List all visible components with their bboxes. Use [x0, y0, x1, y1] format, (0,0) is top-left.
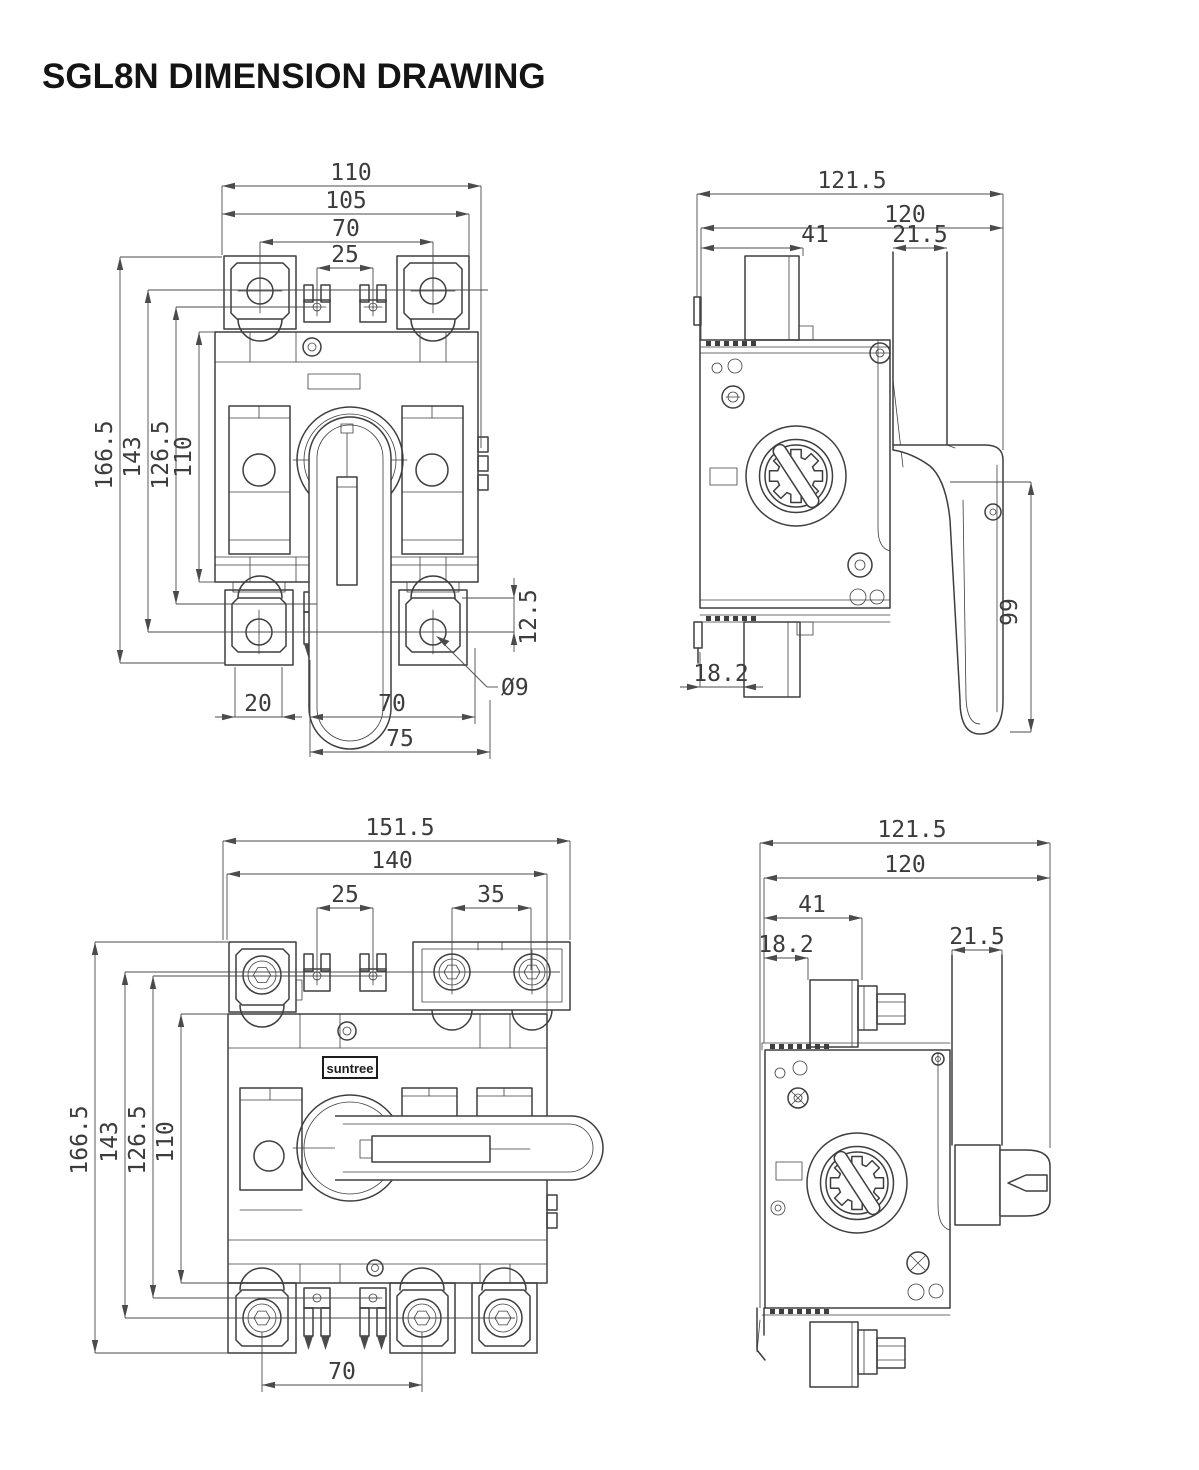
handle-shaft-channel-3p [952, 955, 1002, 1145]
brand-label: suntree [323, 1057, 377, 1078]
side-view-3pole: 121.5 120 41 18.2 21.5 [757, 817, 1050, 1387]
side-tab [478, 475, 488, 490]
dim-label: 143 [97, 1121, 123, 1163]
handle-knob-side [955, 1145, 1050, 1225]
dim-label: 70 [332, 216, 360, 242]
terminal-bottom-right [399, 576, 467, 665]
dim-label: 20 [244, 691, 272, 717]
page-title: SGL8N DIMENSION DRAWING [42, 57, 546, 96]
side-view-2pole: 121.5 120 41 21.5 99 18.2 [680, 168, 1034, 734]
dim-label: 143 [120, 436, 146, 478]
dim-label: 18.2 [693, 661, 748, 687]
dim-terminal-depth [701, 245, 803, 256]
terminal-stud-bottom [810, 1322, 905, 1387]
front-view-3pole: suntree [67, 815, 603, 1392]
dim-label: 105 [325, 188, 367, 214]
terminal-bottom-right-3p [472, 1268, 537, 1353]
dim-label: 121.5 [877, 817, 946, 843]
dim-label: 75 [386, 726, 414, 752]
brand-text: suntree [327, 1061, 374, 1076]
dimension-drawing: SGL8N DIMENSION DRAWING [0, 0, 1199, 1470]
dim-label: 151.5 [365, 815, 434, 841]
dim-label: 25 [331, 882, 359, 908]
rotary-drive-gear-3p [807, 1133, 907, 1233]
dim-body-height [196, 332, 215, 582]
dim-label: 140 [371, 848, 413, 874]
dim-label: 35 [477, 882, 505, 908]
dim-label: 110 [171, 436, 197, 478]
side-handle-2pole [893, 445, 1003, 734]
dim-label: 121.5 [817, 168, 886, 194]
front-view-2pole: 110 105 70 25 166.5 143 126.5 110 12.5 Ø… [92, 160, 542, 759]
dim-clip-pitch-3p [317, 905, 373, 973]
dim-label: 70 [328, 1359, 356, 1385]
wire-clip-bottom-left-3p [304, 1288, 330, 1350]
dim-label: 70 [378, 691, 406, 717]
dim-overall-depth [697, 191, 1003, 450]
rotary-drive-gear [746, 426, 846, 526]
nameplate [308, 374, 360, 389]
terminal-side-top [745, 256, 813, 340]
din-rail-clip-3p [757, 1308, 765, 1360]
switch-handle-horizontal [335, 1116, 603, 1180]
dim-label: 12.5 [516, 589, 542, 644]
dim-label: 18.2 [758, 932, 813, 958]
dim-body-depth [701, 225, 1003, 340]
side-tab [478, 456, 488, 471]
terminal-bottom-mid-3p [390, 1268, 455, 1353]
terminal-stud-top [810, 980, 905, 1047]
dim-label: 166.5 [92, 420, 118, 489]
dimension-drawing-page: SGL8N DIMENSION DRAWING [0, 0, 1199, 1470]
side-tab [547, 1195, 557, 1210]
dim-label: 110 [153, 1121, 179, 1163]
dim-label: 99 [997, 598, 1023, 626]
terminal-bottom-left [225, 576, 293, 665]
dim-label: 120 [884, 852, 926, 878]
handle-shaft-channel [893, 252, 947, 467]
dim-label: Ø9 [501, 675, 529, 701]
dim-rail-offset-3p [764, 955, 808, 980]
dim-label: 166.5 [67, 1105, 93, 1174]
dim-label: 25 [331, 242, 359, 268]
dim-label: 126.5 [125, 1105, 151, 1174]
dim-body-height-3p [178, 1014, 228, 1283]
wire-clip-bottom-right-3p [360, 1288, 386, 1350]
dim-label: 110 [330, 160, 372, 186]
side-tab [478, 437, 488, 452]
dim-label: 21.5 [892, 222, 947, 248]
dim-label: 41 [801, 222, 829, 248]
dim-label: 21.5 [949, 924, 1004, 950]
din-rail-clip [694, 622, 702, 663]
dim-label: 41 [798, 892, 826, 918]
side-tab [547, 1213, 557, 1228]
